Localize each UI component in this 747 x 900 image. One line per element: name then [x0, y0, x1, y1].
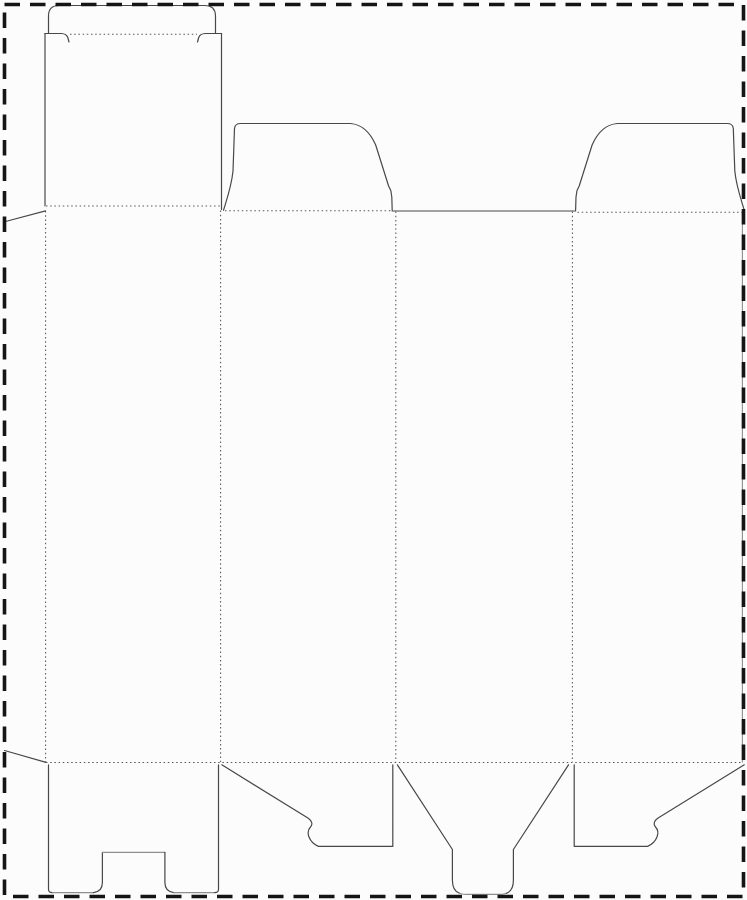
dieline-sheet [0, 0, 747, 900]
box-dieline-drawing [0, 0, 747, 900]
sheet-background [0, 0, 747, 900]
